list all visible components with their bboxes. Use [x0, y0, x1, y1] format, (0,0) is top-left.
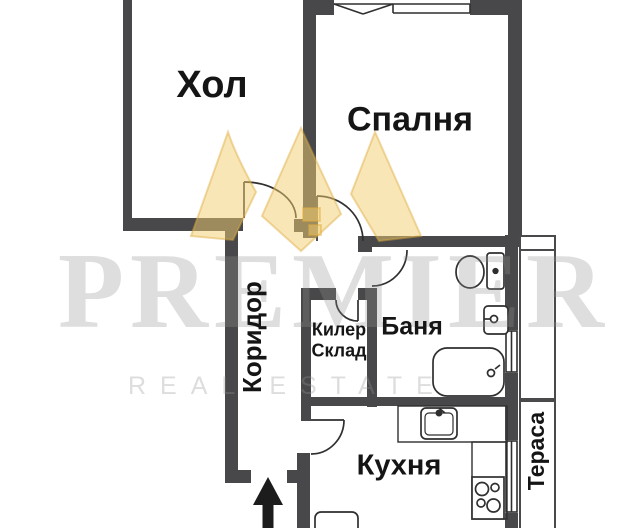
- room-label-kiler: Килер Склад: [311, 319, 366, 360]
- wall-koridor-left-foot: [238, 470, 251, 483]
- kitchen-sink-icon: [421, 408, 457, 439]
- wall-spalnya-right: [508, 0, 522, 247]
- room-label-koridor: Коридор: [238, 281, 268, 393]
- hol-door-icon: [244, 182, 296, 218]
- spalnya-door-icon: [317, 196, 363, 241]
- kuhnya-door-icon: [311, 420, 344, 454]
- spalnya-window-icon: [393, 4, 470, 13]
- wall-koridor-left: [225, 231, 238, 483]
- fixtures-group: [315, 253, 508, 528]
- wall-hol-spalnya-divider: [303, 0, 316, 238]
- terrace-upper-section: [520, 236, 555, 399]
- stove-icon: [472, 477, 504, 519]
- room-label-banya: Баня: [381, 313, 443, 342]
- room-label-kiler-line1: Килер: [312, 319, 366, 339]
- room-label-hol: Хол: [176, 64, 247, 108]
- wall-spalnya-top-right: [470, 0, 508, 15]
- wall-koridor-right-foot: [287, 470, 297, 483]
- wall-kiler-top-left: [301, 288, 336, 300]
- wall-koridor-right-lower: [297, 453, 310, 528]
- wall-banya-kuhnya-divider: [301, 397, 507, 406]
- wall-stub-banya-door: [358, 236, 372, 252]
- wall-hol-left: [123, 0, 132, 231]
- entrance-arrow-icon: [253, 477, 283, 528]
- wall-spalnya-banya-top: [362, 236, 508, 247]
- wall-stub-hol-door: [294, 219, 304, 232]
- wall-hol-bottom: [123, 218, 243, 231]
- room-label-terasa: Тераса: [523, 412, 549, 490]
- bath-sink-icon: [484, 306, 508, 334]
- banya-door-icon: [372, 250, 407, 286]
- wall-spalnya-top-left: [316, 0, 334, 15]
- toilet-icon: [456, 253, 504, 289]
- spalnya-window-opening-icon: [334, 4, 393, 14]
- room-label-kuhnya: Кухня: [357, 449, 442, 482]
- room-label-kiler-line2: Склад: [311, 340, 366, 360]
- bathtub-icon: [433, 348, 504, 396]
- fridge-icon: [315, 512, 358, 528]
- floor-plan-page: PREMIER REAL ESTATE Хол Спалня Коридор К…: [0, 0, 643, 528]
- kiler-door-icon: [336, 300, 358, 321]
- room-label-spalnya: Спалня: [347, 100, 473, 139]
- wall-kiler-right: [367, 288, 377, 407]
- banya-window-icon: [506, 331, 517, 372]
